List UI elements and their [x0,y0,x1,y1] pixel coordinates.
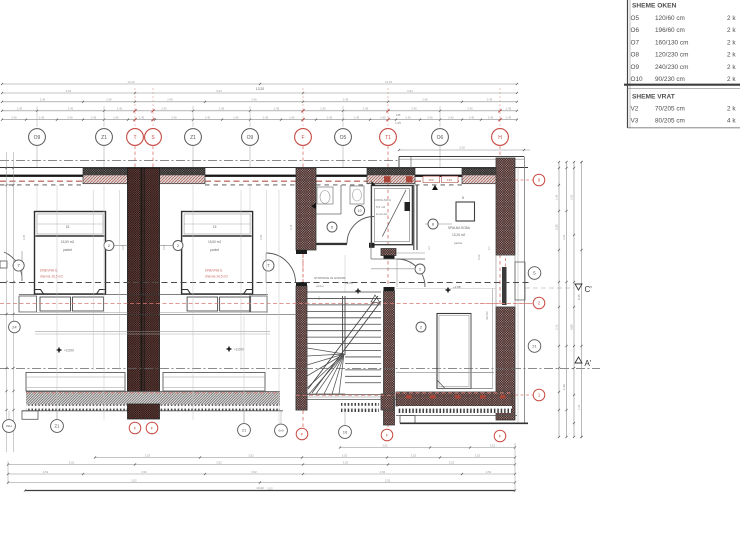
svg-text:O9: O9 [631,64,640,71]
svg-text:3,52: 3,52 [131,478,137,482]
svg-text:A': A' [585,359,592,368]
svg-text:2,45: 2,45 [17,107,23,111]
svg-text:3,30: 3,30 [562,234,566,240]
svg-text:2,45: 2,45 [343,98,349,102]
svg-text:2,45: 2,45 [233,115,239,119]
svg-text:2,45: 2,45 [161,107,167,111]
svg-text:3,52: 3,52 [385,478,391,482]
svg-text:STOPNICE IN HODNIK: STOPNICE IN HODNIK [314,276,346,280]
svg-text:2,45: 2,45 [263,115,269,119]
svg-text:240/230 cm: 240/230 cm [655,64,688,71]
svg-text:0111: 0111 [6,424,13,428]
svg-text:2,45: 2,45 [205,115,211,119]
svg-text:3,52: 3,52 [449,460,455,464]
svg-text:dnevna 16,5 m2: dnevna 16,5 m2 [40,275,63,279]
svg-text:3,52: 3,52 [43,470,49,474]
svg-text:15,50 m2: 15,50 m2 [208,240,222,244]
svg-text:O9: O9 [247,135,254,141]
svg-text:2,45: 2,45 [467,107,473,111]
svg-text:V3: V3 [631,118,639,125]
svg-text:3,52: 3,52 [216,460,222,464]
svg-text:2,45: 2,45 [363,107,369,111]
svg-text:2,45: 2,45 [106,98,112,102]
svg-text:dnevna 16,5 m2: dnevna 16,5 m2 [205,275,228,279]
svg-text:2,45: 2,45 [354,115,360,119]
svg-text:SPALNA SOBA: SPALNA SOBA [448,226,471,230]
svg-text:O6: O6 [437,135,444,141]
svg-text:4,05: 4,05 [121,244,125,250]
svg-text:120/230 cm: 120/230 cm [655,52,688,59]
svg-text:3,52: 3,52 [69,460,75,464]
svg-text:2,02: 2,02 [477,254,481,260]
svg-text:13,20: 13,20 [256,87,264,91]
svg-text:2,45: 2,45 [251,98,257,102]
svg-text:4,05: 4,05 [259,234,263,240]
svg-text:parket: parket [454,241,463,245]
svg-text:160/130 cm: 160/130 cm [655,39,688,46]
svg-text:2,45: 2,45 [91,115,97,119]
svg-text:2,45: 2,45 [422,98,428,102]
svg-text:10: 10 [358,209,362,213]
svg-text:2,45: 2,45 [117,107,123,111]
svg-text:2,45: 2,45 [405,115,411,119]
svg-text:1,45: 1,45 [555,194,559,200]
svg-text:2,45: 2,45 [506,107,512,111]
svg-text:2 k: 2 k [727,64,736,71]
svg-text:21: 21 [532,343,537,348]
svg-text:O5: O5 [340,135,347,141]
svg-text:1,20: 1,20 [562,384,566,390]
svg-text:parket: parket [210,248,219,252]
svg-text:O5: O5 [631,15,640,22]
svg-text:24: 24 [12,324,17,329]
svg-text:160: 160 [428,178,433,182]
svg-text:3,3: 3,3 [427,246,431,250]
svg-text:5,28: 5,28 [459,146,465,150]
svg-text:4,05: 4,05 [162,244,166,250]
svg-text:SHEME OKEN: SHEME OKEN [632,3,677,10]
svg-text:2,45: 2,45 [11,115,17,119]
svg-text:3,52: 3,52 [343,460,349,464]
svg-text:1,30: 1,30 [577,404,581,410]
svg-text:8,45: 8,45 [577,294,581,300]
svg-text:O6: O6 [631,27,640,34]
svg-text:15: 15 [213,225,217,229]
svg-text:keramika: keramika [376,212,388,216]
svg-text:3,52: 3,52 [490,443,496,447]
svg-text:3,52: 3,52 [145,453,151,457]
svg-text:15,50 m2: 15,50 m2 [61,240,75,244]
svg-text:4,05: 4,05 [22,234,26,240]
svg-text:O10: O10 [631,76,644,83]
svg-text:DNEVNA S.: DNEVNA S. [205,269,223,273]
svg-text:3,52: 3,52 [382,443,388,447]
svg-text:Z1: Z1 [55,424,61,429]
svg-text:2,45: 2,45 [67,115,73,119]
svg-text:4,1: 4,1 [487,246,491,250]
svg-text:2,45: 2,45 [219,107,225,111]
svg-text:2,45: 2,45 [113,115,119,119]
svg-text:2,02: 2,02 [570,194,574,200]
svg-text:2,45: 2,45 [380,115,386,119]
svg-text:T: T [133,135,136,141]
svg-text:3,52: 3,52 [342,453,348,457]
svg-text:H: H [498,135,502,141]
svg-text:2 k: 2 k [727,52,736,59]
svg-text:2,45: 2,45 [487,98,493,102]
svg-text:15: 15 [66,225,70,229]
svg-text:2,45: 2,45 [167,98,173,102]
svg-text:2,45: 2,45 [448,115,454,119]
svg-text:5,6 m2: 5,6 m2 [376,205,386,209]
svg-text:2,45: 2,45 [469,115,475,119]
svg-text:2,45: 2,45 [411,107,417,111]
svg-text:2,35: 2,35 [555,224,559,230]
svg-text:2,45: 2,45 [427,115,433,119]
svg-text:3,52: 3,52 [380,470,386,474]
svg-text:2 k: 2 k [727,39,736,46]
svg-text:13,20: 13,20 [128,80,135,84]
svg-text:5: 5 [462,196,464,200]
svg-text:2,45: 2,45 [320,107,326,111]
svg-text:O9: O9 [34,135,41,141]
svg-text:+2,000: +2,000 [234,348,244,352]
svg-text:SHEME VRAT: SHEME VRAT [632,94,675,101]
svg-text:+2,88: +2,88 [453,285,461,289]
svg-text:13,26 m2: 13,26 m2 [452,233,466,237]
svg-text:3,52: 3,52 [267,486,273,490]
svg-text:6,64: 6,64 [66,89,72,93]
svg-text:70/205 cm: 70/205 cm [655,106,685,113]
svg-text:0n0: 0n0 [278,429,283,433]
svg-text:145: 145 [396,113,401,117]
svg-text:+2,000: +2,000 [64,349,74,353]
svg-text:+2,85: +2,85 [345,281,353,285]
svg-text:6,05: 6,05 [570,324,574,330]
svg-text:2,45: 2,45 [171,115,177,119]
svg-text:2 k: 2 k [727,15,736,22]
svg-text:2,45: 2,45 [274,107,280,111]
svg-text:2,45: 2,45 [139,115,145,119]
svg-text:3,52: 3,52 [411,453,417,457]
svg-text:2,45: 2,45 [40,98,46,102]
svg-text:3,52: 3,52 [486,470,492,474]
svg-text:1,05: 1,05 [395,121,401,125]
svg-text:3,52: 3,52 [248,453,254,457]
svg-text:2,45: 2,45 [327,115,333,119]
svg-text:2,35: 2,35 [289,224,293,230]
svg-text:21: 21 [242,427,247,432]
svg-text:3,52: 3,52 [475,453,481,457]
svg-text:KOPALNICA: KOPALNICA [374,198,391,202]
svg-text:447/43: 447/43 [485,311,489,320]
svg-text:2 k: 2 k [727,76,736,83]
svg-text:O8: O8 [631,52,640,59]
svg-text:6,64: 6,64 [407,89,413,93]
svg-text:Z1: Z1 [101,135,107,141]
svg-text:80/205 cm: 80/205 cm [655,118,685,125]
svg-text:2,10: 2,10 [555,324,559,330]
svg-text:T1: T1 [385,135,391,141]
svg-text:2,45: 2,45 [289,115,295,119]
svg-text:parket: parket [316,284,324,288]
svg-text:196/60 cm: 196/60 cm [655,27,685,34]
svg-text:4 k: 4 k [727,118,736,125]
svg-text:13,20: 13,20 [385,80,392,84]
svg-text:Z1: Z1 [190,135,196,141]
svg-text:130: 130 [447,178,452,182]
svg-text:DNEVNA S.: DNEVNA S. [40,269,58,273]
svg-text:1,2: 1,2 [317,296,321,300]
svg-text:13,20: 13,20 [256,486,264,490]
svg-text:parket: parket [63,248,72,252]
svg-text:2,45: 2,45 [488,115,494,119]
svg-text:3,52: 3,52 [251,470,257,474]
svg-text:2,45: 2,45 [506,115,512,119]
svg-text:16: 16 [343,429,348,434]
svg-text:C': C' [585,285,593,294]
svg-text:F: F [301,135,304,141]
svg-text:120/60 cm: 120/60 cm [655,15,685,22]
svg-text:O7: O7 [631,39,640,46]
svg-text:6,64: 6,64 [216,89,222,93]
svg-text:V2: V2 [631,106,639,113]
svg-text:2 k: 2 k [727,106,736,113]
svg-text:2,45: 2,45 [39,115,45,119]
svg-text:2,45: 2,45 [68,107,74,111]
svg-text:2 k: 2 k [727,27,736,34]
svg-text:3,52: 3,52 [141,470,147,474]
svg-text:90/230 cm: 90/230 cm [655,76,685,83]
